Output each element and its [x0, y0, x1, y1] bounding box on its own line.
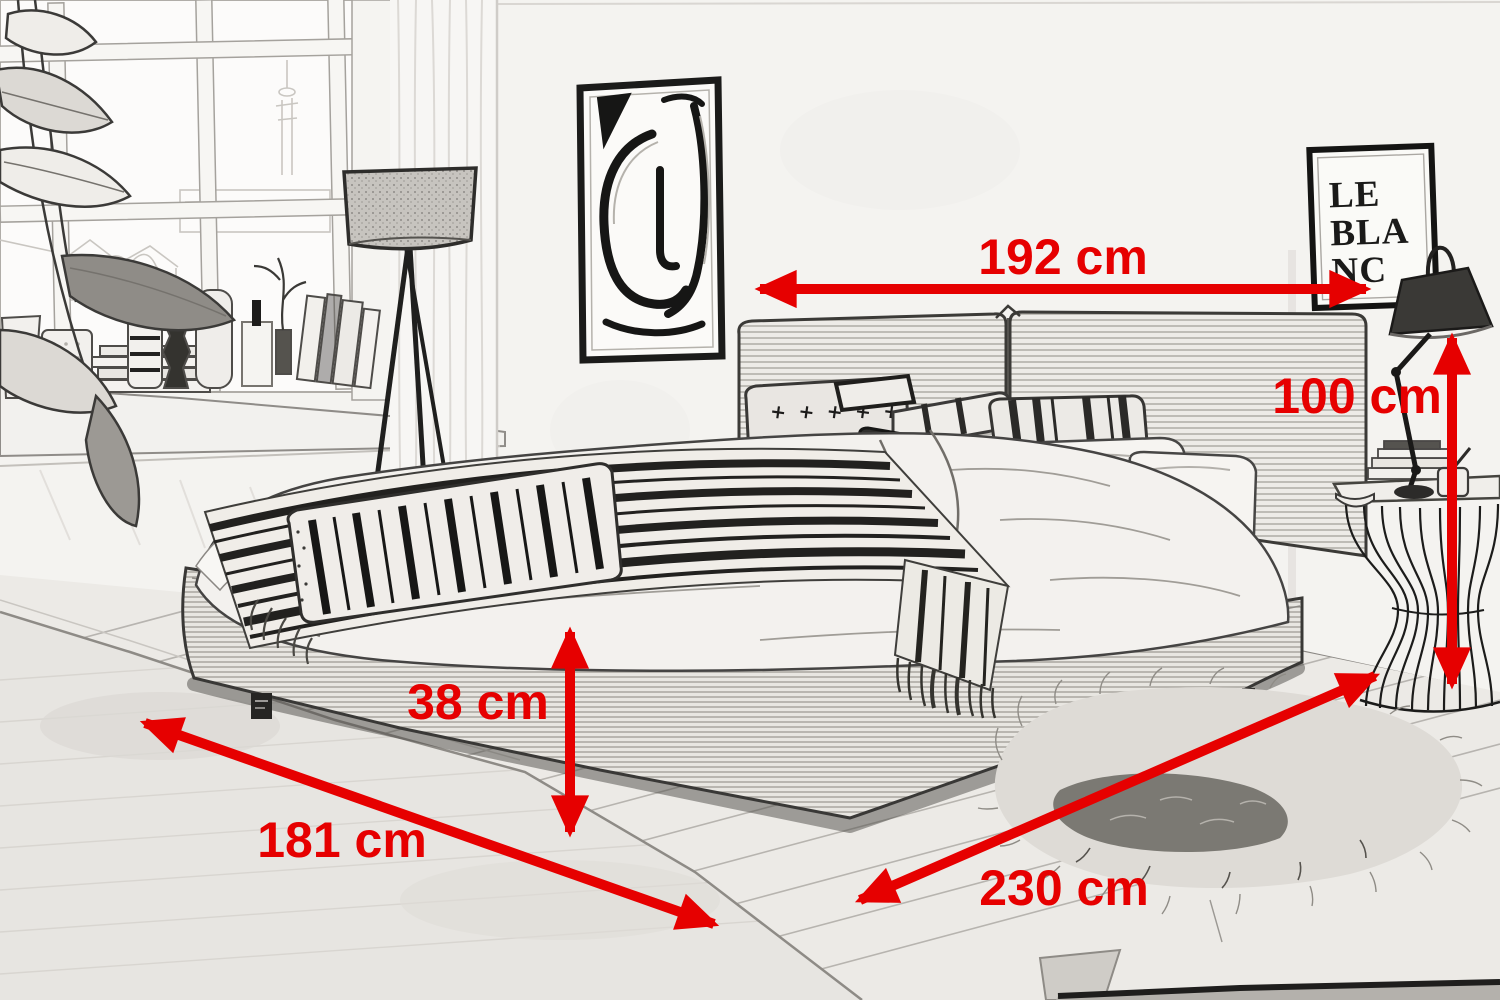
dimension-label-bed-depth: 230 cm	[979, 863, 1149, 913]
dimension-label-bed-front: 181 cm	[257, 815, 427, 865]
bedroom-dimension-diagram: LE BLA NC	[0, 0, 1500, 1000]
glass-candle-holder	[242, 322, 272, 386]
dimension-label-bed-width: 192 cm	[978, 232, 1148, 282]
dimension-label-frame-height: 38 cm	[407, 677, 549, 727]
bud-vase	[276, 330, 291, 374]
abstract-wall-art	[580, 80, 722, 360]
poster-line-2: BLA	[1330, 211, 1410, 255]
poster-line-1: LE	[1328, 174, 1381, 217]
brand-tag	[251, 693, 272, 719]
desk-lamp-base	[1394, 485, 1434, 499]
dimension-label-headboard-height: 100 cm	[1272, 371, 1442, 421]
bedroom-sketch: LE BLA NC	[0, 0, 1500, 1000]
